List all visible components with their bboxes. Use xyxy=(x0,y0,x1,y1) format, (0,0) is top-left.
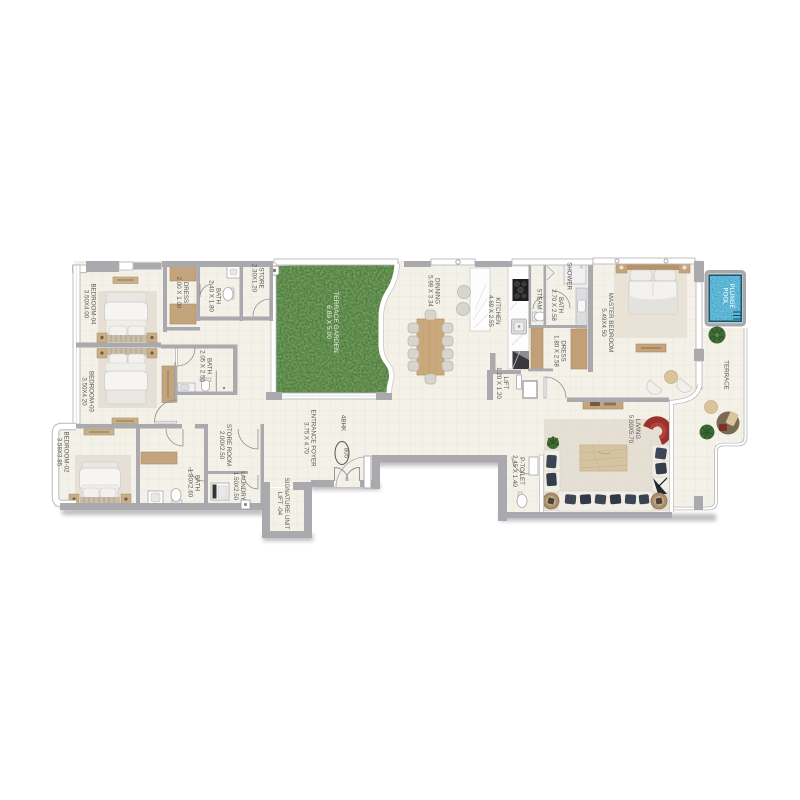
svg-text:STORE2.30X1.20: STORE2.30X1.20 xyxy=(251,264,265,293)
svg-text:DINNING5.99 X 3.34: DINNING5.99 X 3.34 xyxy=(427,275,441,307)
svg-text:805: 805 xyxy=(343,448,350,459)
svg-text:SHOWER: SHOWER xyxy=(566,262,573,290)
svg-text:TERRACE: TERRACE xyxy=(723,360,730,390)
svg-text:P-TOILET2.45 X 1.40: P-TOILET2.45 X 1.40 xyxy=(511,455,525,487)
svg-text:LAUNDRY1.50X2.50: LAUNDRY1.50X2.50 xyxy=(232,471,246,500)
svg-text:STEAM: STEAM xyxy=(536,288,543,309)
svg-text:KITCHEN4.69 X 2.55: KITCHEN4.69 X 2.55 xyxy=(487,295,501,327)
svg-text:4BHK: 4BHK xyxy=(340,415,347,432)
